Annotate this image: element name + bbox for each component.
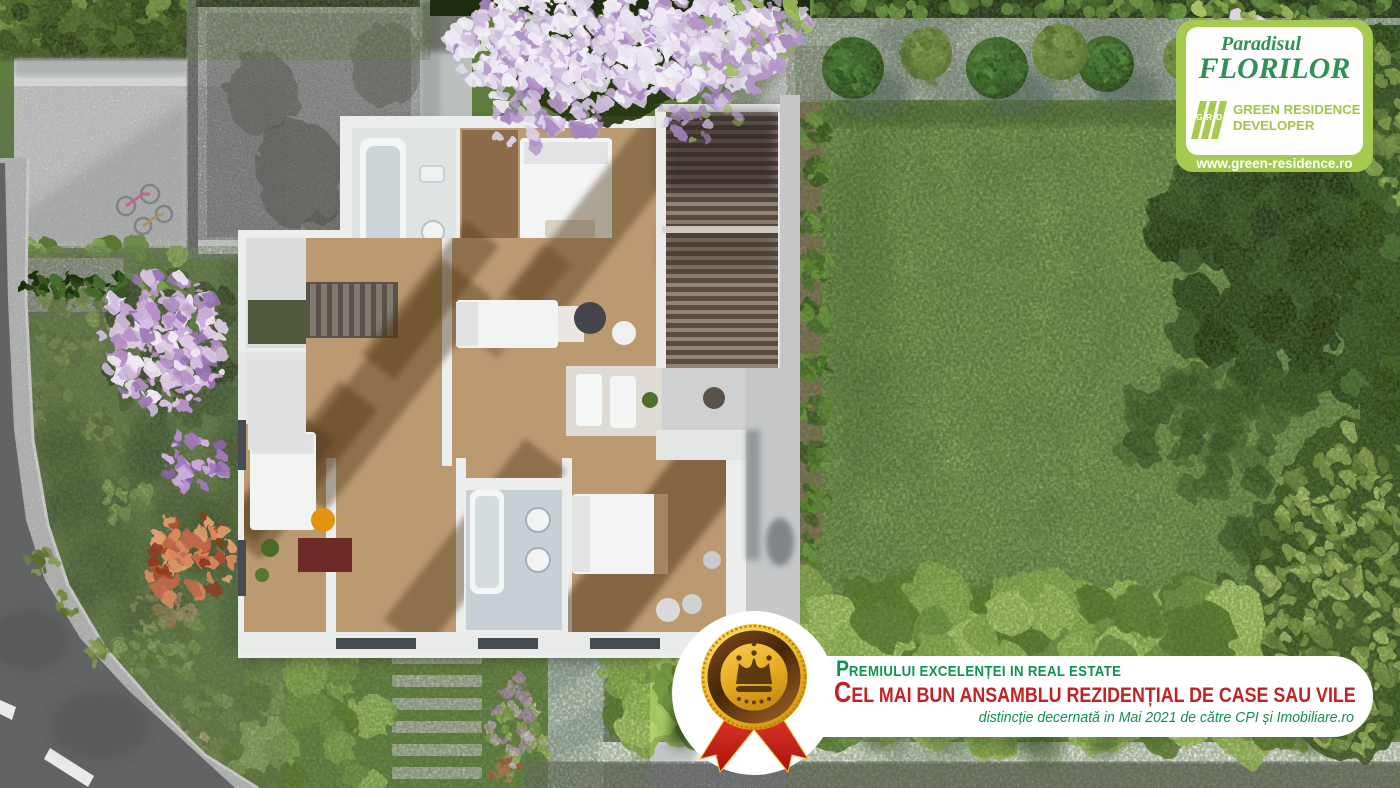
svg-text:G: G <box>1196 112 1203 122</box>
svg-text:R: R <box>1206 112 1212 122</box>
svg-text:D: D <box>1216 112 1222 122</box>
